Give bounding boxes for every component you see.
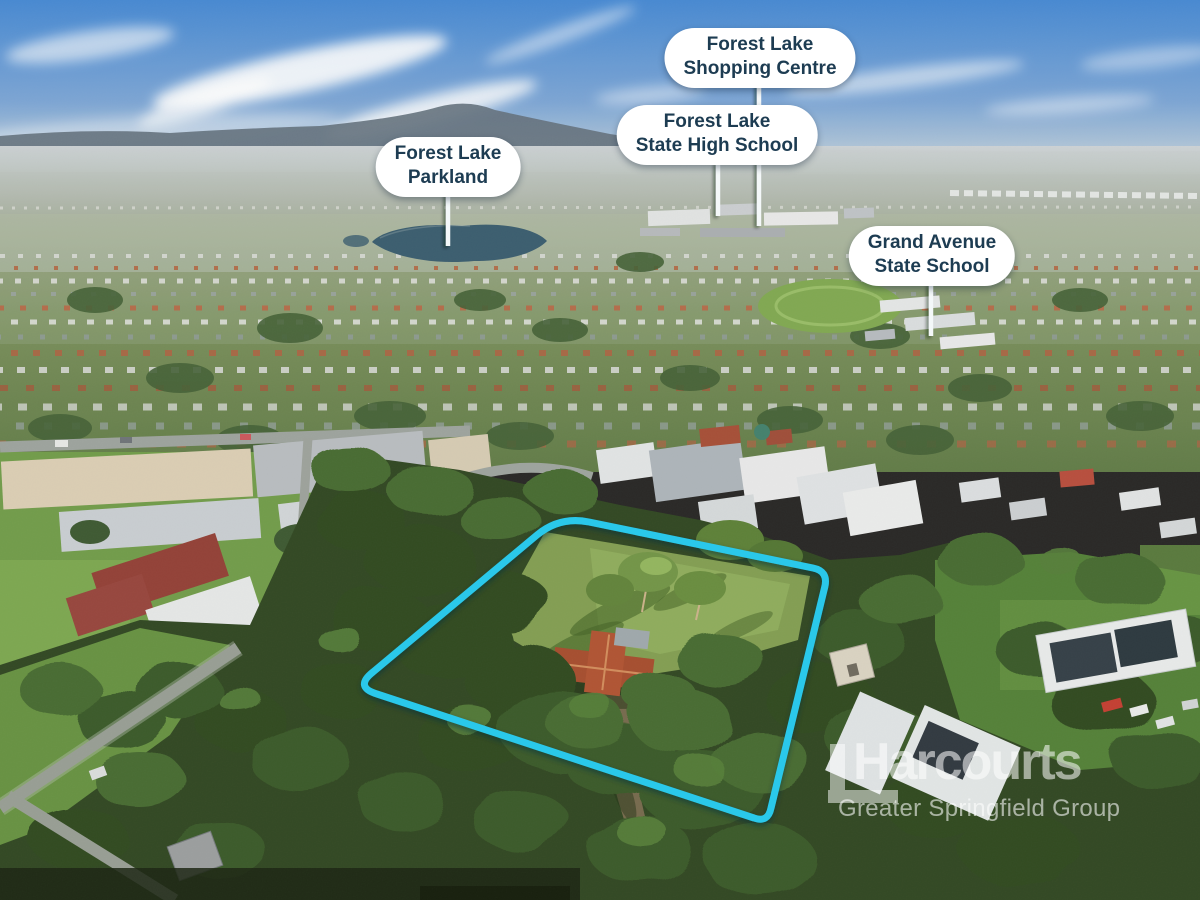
callout-grand-avenue-state-school: Grand Avenue State School [849,226,1015,286]
callout-line: Shopping Centre [683,57,836,81]
callout-line: Forest Lake [636,110,799,134]
callout-line: State High School [636,134,799,158]
callout-line: Forest Lake [395,142,502,166]
aerial-photo-scene: Forest Lake Shopping Centre Forest Lake … [0,0,1200,900]
callout-line: Grand Avenue [868,231,996,255]
callout-line: State School [868,255,996,279]
callout-line: Parkland [395,166,502,190]
callout-line: Forest Lake [683,33,836,57]
callout-forest-lake-parkland: Forest Lake Parkland [376,137,521,197]
aerial-photo [0,0,1200,900]
callout-forest-lake-shopping-centre: Forest Lake Shopping Centre [664,28,855,88]
callout-forest-lake-state-high-school: Forest Lake State High School [617,105,818,165]
